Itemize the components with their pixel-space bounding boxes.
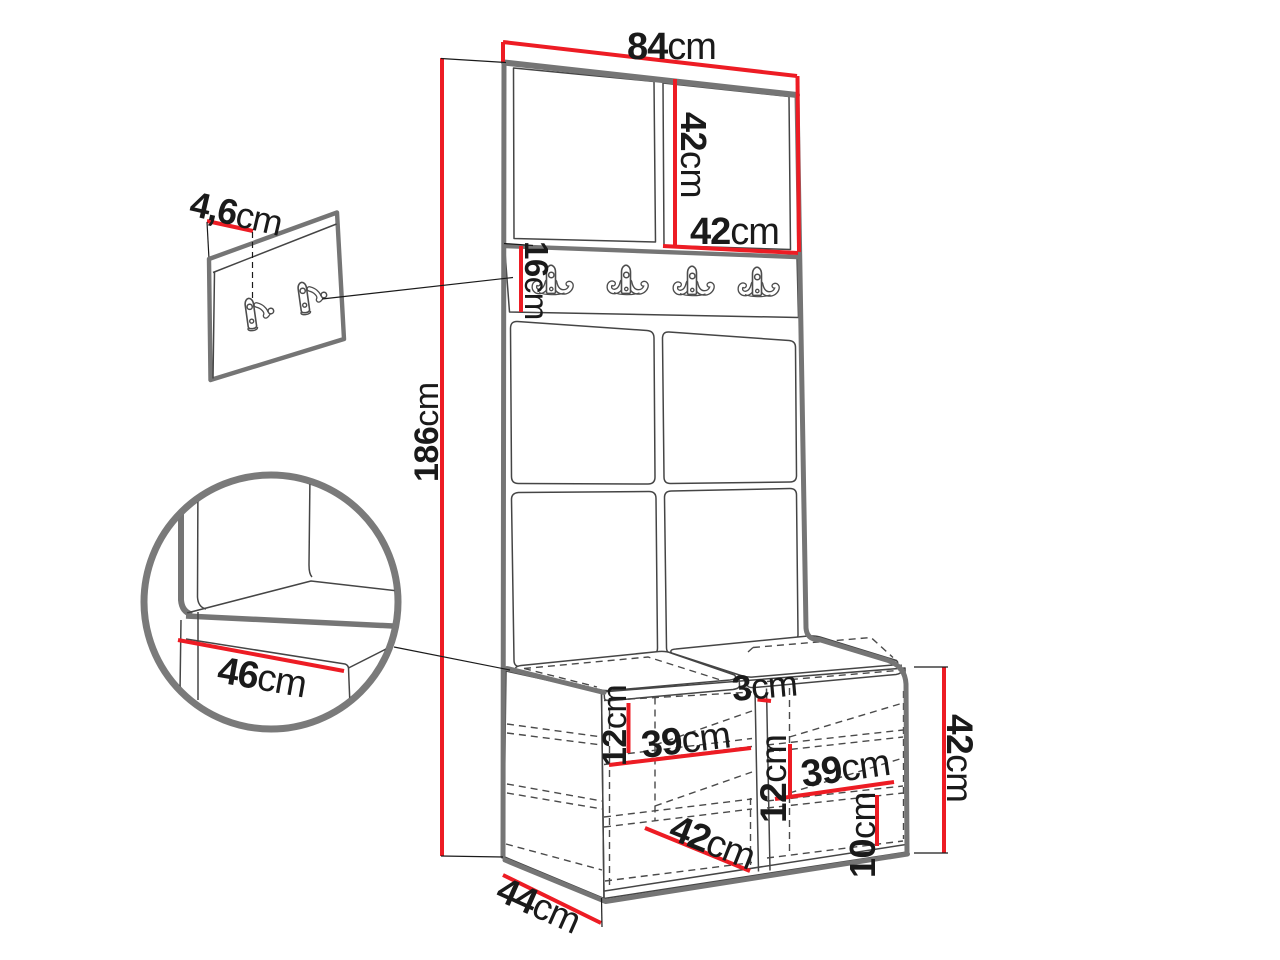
- svg-text:3cm: 3cm: [730, 662, 798, 709]
- svg-text:42cm: 42cm: [939, 714, 980, 802]
- svg-text:186cm: 186cm: [408, 382, 446, 482]
- svg-text:42cm: 42cm: [690, 211, 779, 253]
- svg-text:10cm: 10cm: [842, 792, 883, 878]
- svg-text:84cm: 84cm: [627, 26, 716, 68]
- svg-text:16cm: 16cm: [518, 241, 555, 320]
- svg-text:12cm: 12cm: [596, 685, 634, 766]
- svg-text:42cm: 42cm: [673, 112, 714, 198]
- svg-text:12cm: 12cm: [753, 735, 794, 823]
